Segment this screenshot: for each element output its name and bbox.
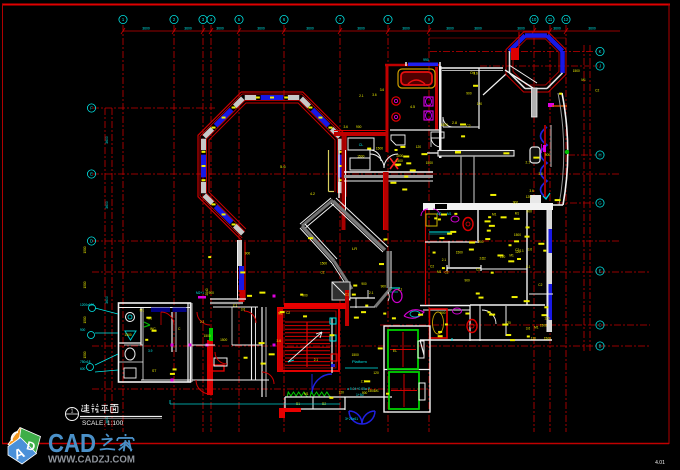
svg-text:M1: M1 bbox=[515, 212, 520, 216]
svg-text:900: 900 bbox=[362, 391, 368, 395]
svg-text:E: E bbox=[90, 172, 93, 177]
svg-text:M1: M1 bbox=[278, 311, 283, 315]
svg-text:1500: 1500 bbox=[426, 161, 433, 165]
svg-text:3600: 3600 bbox=[142, 27, 150, 31]
svg-text:2.1: 2.1 bbox=[314, 358, 319, 362]
svg-text:C2: C2 bbox=[286, 311, 290, 315]
svg-text:1500: 1500 bbox=[441, 123, 448, 127]
svg-text:C2: C2 bbox=[476, 267, 480, 271]
svg-text:2.1: 2.1 bbox=[526, 161, 531, 165]
svg-text:120: 120 bbox=[505, 321, 511, 325]
svg-text:120: 120 bbox=[531, 336, 537, 340]
svg-text:1500: 1500 bbox=[514, 233, 521, 237]
svg-text:1500: 1500 bbox=[220, 338, 227, 342]
svg-text:3.6: 3.6 bbox=[529, 189, 534, 193]
svg-text:3600: 3600 bbox=[474, 27, 482, 31]
svg-text:M1: M1 bbox=[447, 212, 452, 216]
svg-text:2.1: 2.1 bbox=[369, 291, 374, 295]
svg-text:1500: 1500 bbox=[83, 246, 87, 253]
svg-text:900: 900 bbox=[381, 284, 387, 288]
svg-text:1500: 1500 bbox=[125, 333, 132, 337]
svg-text:120: 120 bbox=[339, 390, 345, 394]
svg-text:3.6: 3.6 bbox=[528, 247, 533, 251]
svg-text:CL: CL bbox=[359, 143, 364, 147]
svg-text:900: 900 bbox=[80, 328, 86, 332]
svg-text:3600: 3600 bbox=[257, 27, 265, 31]
svg-text:900: 900 bbox=[513, 201, 519, 205]
svg-text:900: 900 bbox=[464, 278, 470, 282]
svg-text:4.2: 4.2 bbox=[310, 192, 315, 196]
svg-text:1500: 1500 bbox=[320, 261, 327, 265]
svg-text:4.01: 4.01 bbox=[655, 460, 665, 466]
svg-text:120: 120 bbox=[477, 102, 483, 106]
svg-text:10: 10 bbox=[532, 17, 537, 22]
svg-text:E: E bbox=[599, 269, 602, 274]
svg-text:900: 900 bbox=[527, 210, 533, 214]
svg-text:C2: C2 bbox=[444, 271, 448, 275]
svg-text:3.6: 3.6 bbox=[526, 327, 531, 331]
svg-text:1500: 1500 bbox=[376, 147, 383, 151]
svg-text:2.1: 2.1 bbox=[233, 303, 238, 307]
svg-text:1500: 1500 bbox=[83, 351, 87, 358]
svg-text:M1: M1 bbox=[140, 309, 145, 313]
svg-text:12: 12 bbox=[564, 17, 569, 22]
svg-text:1500: 1500 bbox=[352, 353, 359, 357]
svg-text:2.1: 2.1 bbox=[442, 258, 447, 262]
svg-text:3600: 3600 bbox=[306, 27, 314, 31]
svg-text:900: 900 bbox=[478, 240, 484, 244]
svg-text:1500: 1500 bbox=[83, 316, 87, 323]
svg-text:1500: 1500 bbox=[396, 159, 403, 163]
svg-text:J: J bbox=[599, 64, 601, 69]
svg-text:3600: 3600 bbox=[553, 27, 561, 31]
svg-text:120: 120 bbox=[373, 371, 379, 375]
svg-text:M1: M1 bbox=[492, 212, 497, 216]
svg-text:120: 120 bbox=[526, 195, 532, 199]
svg-text:900: 900 bbox=[356, 125, 362, 129]
svg-text:3.6: 3.6 bbox=[343, 125, 348, 129]
svg-text:2.1: 2.1 bbox=[200, 320, 205, 324]
svg-text:3600: 3600 bbox=[184, 27, 192, 31]
svg-text:900: 900 bbox=[245, 252, 251, 256]
svg-text:2.1: 2.1 bbox=[526, 265, 531, 269]
svg-text:EL: EL bbox=[393, 349, 397, 353]
svg-text:D: D bbox=[90, 239, 93, 244]
svg-text:M1: M1 bbox=[437, 270, 442, 274]
svg-text:2.1: 2.1 bbox=[345, 293, 350, 297]
svg-text:3600: 3600 bbox=[105, 201, 109, 209]
svg-text:1500: 1500 bbox=[357, 155, 364, 159]
svg-text:120: 120 bbox=[544, 317, 550, 321]
svg-text:2.8: 2.8 bbox=[452, 121, 457, 125]
svg-text:M1: M1 bbox=[304, 392, 309, 396]
svg-text:C: C bbox=[598, 323, 601, 328]
svg-text:B: B bbox=[599, 344, 602, 349]
svg-text:900: 900 bbox=[466, 92, 472, 96]
svg-text:990: 990 bbox=[423, 58, 429, 62]
svg-text:M1: M1 bbox=[509, 253, 514, 257]
svg-text:120: 120 bbox=[515, 250, 521, 254]
svg-text:900: 900 bbox=[545, 153, 551, 157]
svg-text:K: K bbox=[599, 49, 602, 54]
svg-text:600: 600 bbox=[80, 367, 86, 371]
svg-text:900: 900 bbox=[361, 282, 367, 286]
svg-text:2.1: 2.1 bbox=[361, 380, 366, 384]
svg-text:3600: 3600 bbox=[357, 27, 365, 31]
svg-text:3600: 3600 bbox=[216, 27, 224, 31]
svg-text:3+25x61: 3+25x61 bbox=[345, 417, 358, 421]
svg-text:1500: 1500 bbox=[396, 154, 403, 158]
svg-text:G: G bbox=[598, 201, 601, 206]
svg-text:2.1: 2.1 bbox=[398, 287, 403, 291]
svg-text:M1: M1 bbox=[374, 389, 379, 393]
svg-text:H: H bbox=[598, 153, 601, 158]
svg-text:3.6: 3.6 bbox=[372, 93, 377, 97]
svg-text:1500: 1500 bbox=[544, 336, 551, 340]
svg-text:ST: ST bbox=[152, 369, 156, 373]
svg-text:4.5: 4.5 bbox=[410, 105, 415, 109]
svg-text:C2: C2 bbox=[466, 124, 470, 128]
svg-text:3.6: 3.6 bbox=[380, 88, 385, 92]
svg-text:3600: 3600 bbox=[105, 296, 109, 304]
svg-text:F: F bbox=[90, 106, 93, 111]
svg-text:3.6: 3.6 bbox=[241, 307, 246, 311]
svg-text:900: 900 bbox=[209, 291, 215, 295]
svg-text:3600: 3600 bbox=[402, 27, 410, 31]
svg-text:1200x600: 1200x600 bbox=[80, 303, 94, 307]
svg-text:3600: 3600 bbox=[446, 27, 454, 31]
svg-text:120: 120 bbox=[416, 145, 422, 149]
svg-text:M2+1: M2+1 bbox=[196, 291, 204, 295]
svg-text:C2: C2 bbox=[320, 271, 324, 275]
svg-text:1: 1 bbox=[71, 409, 74, 415]
svg-text:C2: C2 bbox=[430, 264, 434, 268]
svg-text:2.1: 2.1 bbox=[359, 94, 364, 98]
svg-text:1500: 1500 bbox=[204, 334, 211, 338]
svg-text:M2: M2 bbox=[437, 212, 442, 216]
svg-text:SCALE. 1:100: SCALE. 1:100 bbox=[82, 420, 124, 427]
svg-text:11: 11 bbox=[548, 17, 553, 22]
svg-text:1500: 1500 bbox=[540, 323, 547, 327]
svg-text:1500: 1500 bbox=[456, 251, 463, 255]
svg-text:3.9: 3.9 bbox=[148, 349, 153, 353]
svg-text:M1: M1 bbox=[581, 78, 586, 82]
svg-text:3.6: 3.6 bbox=[277, 339, 282, 343]
svg-text:900: 900 bbox=[440, 311, 446, 315]
svg-text:C2: C2 bbox=[595, 88, 599, 92]
svg-text:1500: 1500 bbox=[573, 69, 580, 73]
svg-text:Platform: Platform bbox=[352, 359, 368, 364]
svg-text:3.6: 3.6 bbox=[473, 71, 478, 75]
svg-text:3600: 3600 bbox=[588, 27, 596, 31]
svg-text:3600: 3600 bbox=[517, 27, 525, 31]
svg-text:2.1: 2.1 bbox=[480, 257, 485, 261]
svg-text:3600: 3600 bbox=[105, 136, 109, 144]
svg-text:WWW.CADZJ.COM: WWW.CADZJ.COM bbox=[48, 454, 135, 466]
svg-text:3.6: 3.6 bbox=[538, 172, 543, 176]
svg-text:C2: C2 bbox=[538, 283, 542, 287]
svg-text:LR: LR bbox=[352, 246, 357, 251]
svg-text:M1: M1 bbox=[534, 325, 539, 329]
svg-text:5.6: 5.6 bbox=[280, 164, 286, 169]
svg-text:1500: 1500 bbox=[83, 281, 87, 288]
